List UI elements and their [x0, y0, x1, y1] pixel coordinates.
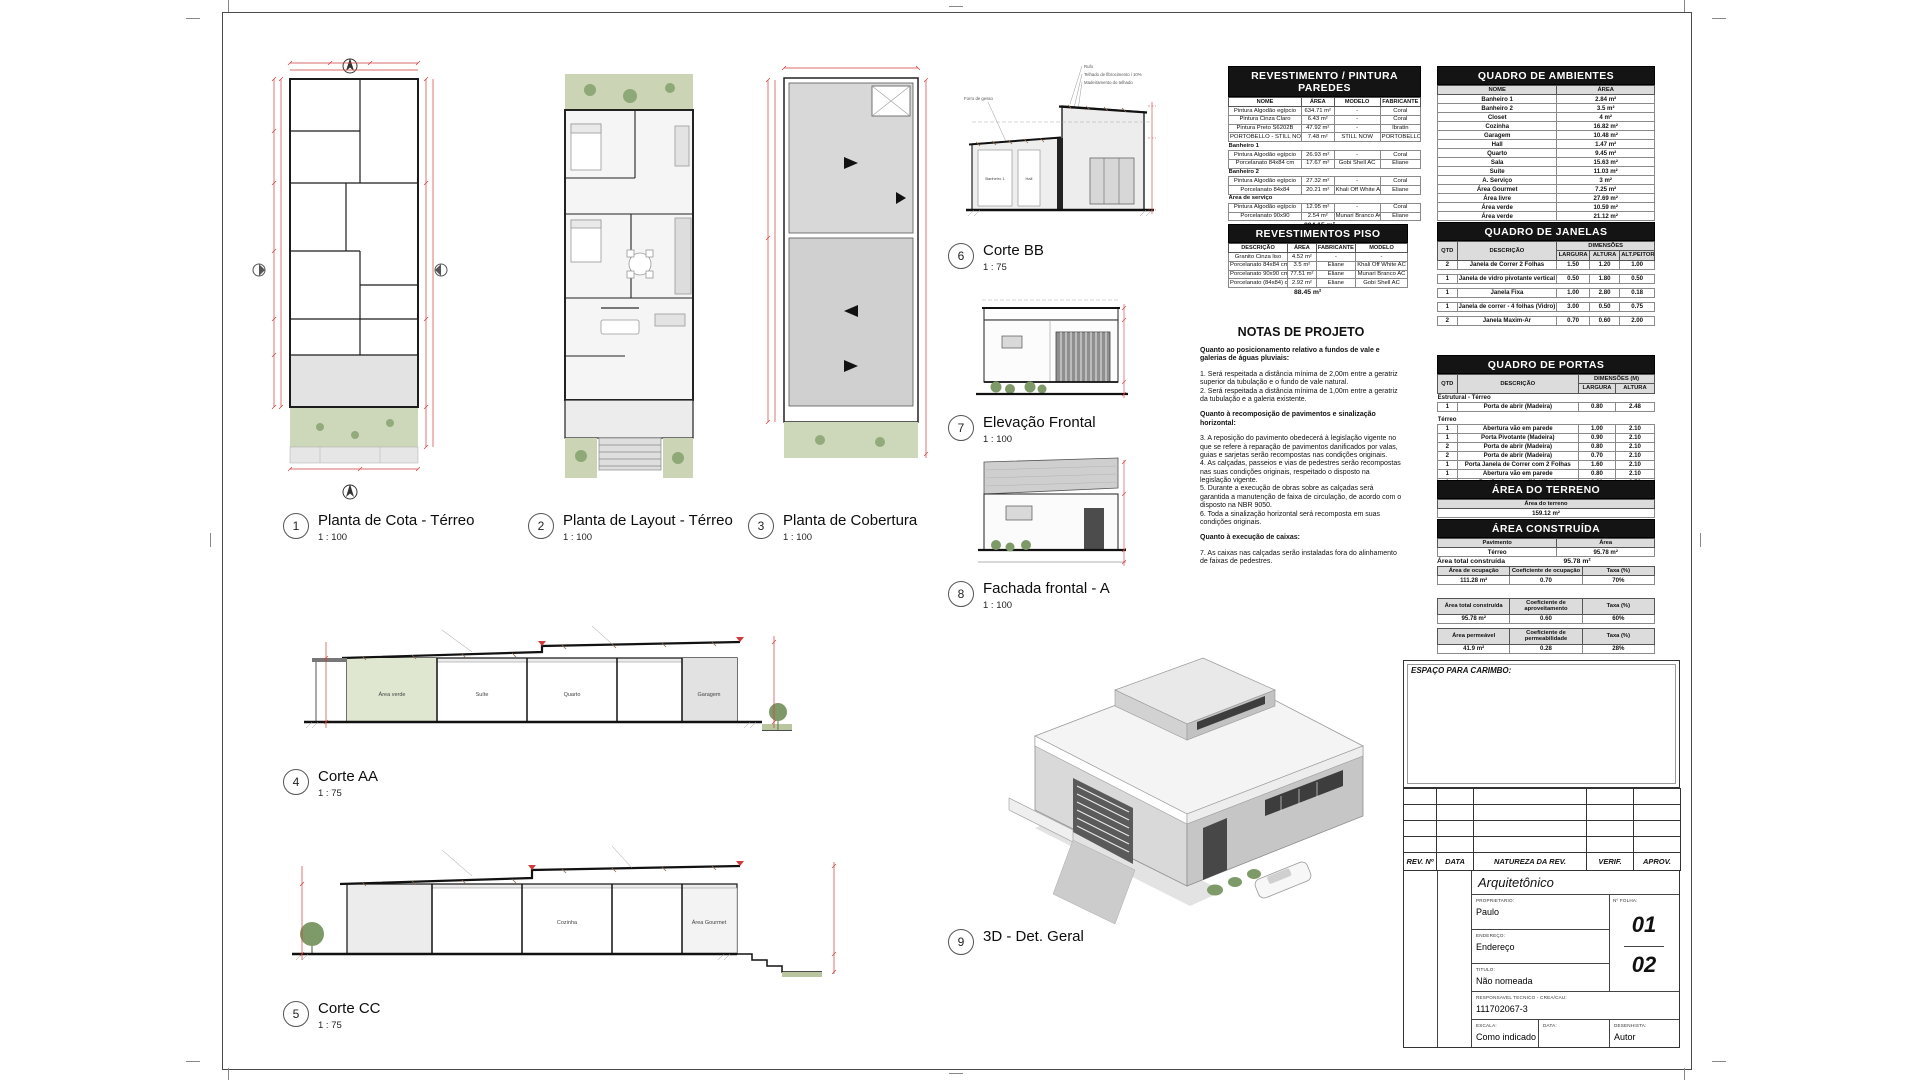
table-cell: 1.60 [1579, 460, 1616, 469]
table-cell: Porcelanato 90x90 [1229, 212, 1302, 221]
table-cell: Coral [1380, 115, 1420, 124]
level-marks [1148, 102, 1156, 214]
schedule-revestimento-paredes: REVESTIMENTO / PINTURA PAREDES NOME ÁREA… [1228, 66, 1421, 229]
table-cell: Eliane [1380, 186, 1420, 195]
stamp-inner-border [1407, 664, 1676, 784]
table-cell: - [1334, 115, 1380, 124]
schedule-title: QUADRO DE PORTAS [1437, 355, 1655, 374]
view-number: 4 [283, 769, 309, 795]
field-label-data: DATA: [1543, 1023, 1557, 1028]
schedule-table: QTD DESCRIÇÃO DIMENSÕES LARGURA ALTURA A… [1437, 241, 1655, 326]
trim-mark [228, 1068, 229, 1080]
schedule-table: Área do terreno 159.12 m² [1437, 499, 1655, 518]
table-cell: Banheiro 1 [1438, 95, 1557, 104]
table-cell: Porcelanato 84x84 cm [1229, 159, 1302, 168]
view-number: 9 [948, 929, 974, 955]
table-row: Banheiro 23.5 m² [1438, 104, 1655, 113]
table-cell: Área verde [1438, 212, 1557, 221]
table-cell: Pintura Algodão egípcio [1229, 203, 1302, 212]
table-cell: Porta de abrir (Madeira) [1457, 451, 1579, 460]
table-row: Banheiro 12.84 m² [1438, 95, 1655, 104]
table-cell: Porta Pivotante (Madeira) [1457, 433, 1579, 442]
table-cell: 1.00 [1579, 424, 1616, 433]
column-header: ÁREA [1557, 86, 1655, 95]
view-title: Elevação Frontal [983, 414, 1096, 431]
svg-text:Garagem: Garagem [698, 692, 721, 698]
schedule-title: REVESTIMENTOS PISO [1228, 224, 1408, 243]
table-cell: 2.92 m² [1288, 279, 1317, 288]
schedule-area-terreno: ÁREA DO TERRENO Área do terreno 159.12 m… [1437, 480, 1655, 518]
table-cell: Área verde [1438, 203, 1557, 212]
table-row: Porcelanato (84x84) cm2.92 m²ElianeGobi … [1229, 279, 1408, 288]
view-title: Planta de Cota - Térreo [318, 512, 474, 529]
elevation-body [978, 458, 1126, 562]
table-cell: Porta Janela de Correr com 2 Folhas [1457, 460, 1579, 469]
table-cell: 1.20 [1589, 260, 1619, 269]
table-row: 2Janela de Correr 2 Folhas1.501.201.00 [1438, 260, 1655, 269]
column-header: NATUREZA DA REV. [1474, 853, 1587, 871]
trim-mark [949, 6, 963, 7]
table-cell: Eliane [1316, 261, 1355, 270]
table-cell: 3 m² [1557, 176, 1655, 185]
table-cell: 95.78 m² [1557, 548, 1655, 557]
column-header: REV. Nº [1404, 853, 1437, 871]
svg-text:Banheiro 1: Banheiro 1 [985, 176, 1005, 181]
table-cell: Pintura Preto S6202B [1229, 124, 1302, 133]
table-cell: Janela Maxim-Ar [1457, 316, 1557, 325]
table-cell: 1 [1438, 460, 1458, 469]
table-cell: 0.50 [1620, 274, 1655, 283]
section-body: Cozinha Área Gourmet [292, 846, 822, 977]
table-cell: Janela de vidro pivotante vertical [1457, 274, 1557, 283]
column-header: Área [1557, 539, 1655, 548]
table-cell: Garagem [1438, 131, 1557, 140]
table-cell: STILL NOW [1334, 133, 1380, 142]
table-section-label: Banheiro 1 [1229, 142, 1421, 151]
table-cell: 0.80 [1579, 442, 1616, 451]
section-body: Área verde Suíte Quarto Garagem [304, 626, 792, 730]
table-row: Porcelanato 84x8420.21 m²Khali Off White… [1229, 186, 1421, 195]
table-row: Quarto9.45 m² [1438, 149, 1655, 158]
column-header: Pavimento [1438, 539, 1557, 548]
column-header: DIMENSÕES (M) [1579, 375, 1655, 384]
table-cell: 0.80 [1579, 402, 1616, 411]
table-row: 1Abertura vão em parede0.802.10 [1438, 469, 1655, 478]
view-label-4: 4 Corte AA 1 : 75 [283, 768, 378, 799]
schedule-total: 88.45 m² [1228, 288, 1408, 296]
table-cell: 1 [1438, 402, 1458, 411]
table-section-label: Área de serviço [1229, 194, 1421, 203]
svg-text:Telhado de fibrocimento i 10%: Telhado de fibrocimento i 10% [1084, 72, 1142, 77]
table-row: 2Porta de abrir (Madeira)0.702.10 [1438, 451, 1655, 460]
table-cell: 17.67 m² [1301, 159, 1334, 168]
table-cell: Ibratin [1380, 124, 1420, 133]
fachada-frontal-drawing [972, 448, 1132, 576]
corte-bb-drawing: Rufo Telhado de fibrocimento i 10% Madei… [962, 58, 1157, 243]
table-section-label: Banheiro 2 [1229, 168, 1421, 177]
table-row: Sala15.63 m² [1438, 158, 1655, 167]
table-cell: 634.71 m² [1301, 107, 1334, 116]
field-label-responsavel: RESPONSAVEL TECNICO - CREA/CAU: [1476, 995, 1567, 1000]
elevation-body [976, 300, 1128, 394]
notes-paragraph: 3. A reposição do pavimento obedecerá à … [1200, 435, 1402, 527]
view-label-6: 6 Corte BB 1 : 75 [948, 242, 1044, 273]
table-cell: 1 [1438, 424, 1458, 433]
revision-empty-row [1404, 821, 1681, 837]
table-cell: Cozinha [1438, 122, 1557, 131]
table-cell: 41.9 m² [1438, 644, 1510, 653]
table-cell: 2.80 [1589, 288, 1619, 297]
table-cell: 0.70 [1510, 576, 1582, 585]
svg-text:Suíte: Suíte [476, 692, 489, 698]
view-title: Planta de Cobertura [783, 512, 917, 529]
schedule-footer: Área total construída 95.78 m² [1437, 557, 1655, 565]
table-cell: 0.80 [1579, 469, 1616, 478]
view-title: Corte BB [983, 242, 1044, 259]
table-cell: Janela Fixa [1457, 288, 1557, 297]
table-cell: 2.10 [1615, 442, 1654, 451]
trim-mark [1700, 533, 1701, 547]
table-cell: 1.00 [1557, 288, 1590, 297]
notes-heading: Quanto à recomposição de pavimentos e si… [1200, 411, 1402, 428]
table-cell: Munari Branco AC [1356, 270, 1408, 279]
table-row: Pintura Algodão egípcio12.95 m²-Coral [1229, 203, 1421, 212]
svg-text:Rufo: Rufo [1084, 64, 1094, 69]
table-cell: 2.10 [1615, 424, 1654, 433]
table-cell: 0.90 [1579, 433, 1616, 442]
table-row: A. Serviço3 m² [1438, 176, 1655, 185]
table-cell: 11.03 m² [1557, 167, 1655, 176]
notes-title: NOTAS DE PROJETO [1200, 325, 1402, 339]
table-cell: 1 [1438, 469, 1458, 478]
column-header: Coeficiente de ocupação [1510, 567, 1582, 576]
column-header: ÁREA [1288, 244, 1317, 253]
view-label-1: 1 Planta de Cota - Térreo 1 : 100 [283, 512, 474, 543]
view-title: Corte AA [318, 768, 378, 785]
field-value-proprietario: Paulo [1476, 907, 1499, 917]
ratio-table-aproveitamento: Área total construída Coeficiente de apr… [1437, 598, 1655, 624]
table-cell: Quarto [1438, 149, 1557, 158]
table-row: Térreo [1438, 416, 1655, 425]
table-cell: Área livre [1438, 194, 1557, 203]
schedule-title: ÁREA CONSTRUÍDA [1437, 519, 1655, 538]
notes-paragraph: 1. Será respeitada a distância mínima de… [1200, 371, 1402, 405]
table-cell: 1 [1438, 274, 1458, 283]
table-cell: 7.48 m² [1301, 133, 1334, 142]
table-cell: Área Gourmet [1438, 185, 1557, 194]
revision-table: REV. Nº DATA NATUREZA DA REV. VERIF. APR… [1403, 788, 1681, 871]
table-cell: 16.82 m² [1557, 122, 1655, 131]
ratio-table-permeabilidade: Área permeável Coeficiente de permeabili… [1437, 628, 1655, 654]
trim-mark [210, 533, 211, 547]
table-row: 2Porta de abrir (Madeira)0.802.10 [1438, 442, 1655, 451]
column-header: DIMENSÕES [1557, 242, 1655, 251]
table-cell: 20.21 m² [1301, 186, 1334, 195]
elevation-marker-icon [253, 264, 265, 276]
table-cell: 1.80 [1589, 274, 1619, 283]
table-cell: 0.60 [1589, 316, 1619, 325]
schedule-quadro-ambientes: QUADRO DE AMBIENTES NOME ÁREA Banheiro 1… [1437, 66, 1655, 237]
table-row: 1Porta Pivotante (Madeira)0.902.10 [1438, 433, 1655, 442]
table-row: Banheiro 1 [1229, 142, 1421, 151]
field-value-escala: Como indicado [1476, 1032, 1536, 1042]
table-row: Térreo95.78 m² [1438, 548, 1655, 557]
column-header: Área de ocupação [1438, 567, 1510, 576]
table-cell: - [1334, 124, 1380, 133]
column-header: ALTURA [1589, 251, 1619, 260]
table-cell: Banheiro 2 [1438, 104, 1557, 113]
level-marks [1122, 304, 1126, 398]
table-cell: 0.28 [1510, 644, 1582, 653]
svg-text:Cozinha: Cozinha [557, 920, 578, 926]
table-row: Garagem10.48 m² [1438, 131, 1655, 140]
corte-cc-drawing: Cozinha Área Gourmet [282, 822, 852, 987]
table-cell: Gobi Shell AC [1334, 159, 1380, 168]
field-value-endereco: Endereço [1476, 942, 1515, 952]
view-number: 8 [948, 581, 974, 607]
table-cell: PORTOBELLO - STILL NOW SAND 160X160 NAT … [1229, 133, 1302, 142]
table-row: Área Gourmet7.25 m² [1438, 185, 1655, 194]
column-header: FABRICANTE [1316, 244, 1355, 253]
table-cell: Porta de abrir (Madeira) [1457, 402, 1579, 411]
column-header: Área do terreno [1438, 500, 1655, 509]
field-value-titulo: Não nomeada [1476, 976, 1533, 986]
table-cell: 26.93 m² [1301, 151, 1334, 160]
footer-label: Área total construída [1437, 558, 1505, 565]
table-row: PORTOBELLO - STILL NOW SAND 160X160 NAT … [1229, 133, 1421, 142]
table-row: 1Janela de correr - 4 folhas (Vidro)3.00… [1438, 302, 1655, 311]
table-row: 1Janela de vidro pivotante vertical0.501… [1438, 274, 1655, 283]
table-cell: 10.59 m² [1557, 203, 1655, 212]
table-cell: Pintura Cinza Claro [1229, 115, 1302, 124]
sheet-number-box: Nº FOLHA: 01 02 [1609, 894, 1679, 991]
view-number: 5 [283, 1001, 309, 1027]
table-cell: 4 m² [1557, 113, 1655, 122]
column-header: ÁREA [1301, 98, 1334, 107]
schedule-table: DESCRIÇÃO ÁREA FABRICANTE MODELO Granito… [1228, 243, 1408, 288]
table-cell: 28% [1582, 644, 1654, 653]
table-cell: 3.5 m² [1288, 261, 1317, 270]
schedule-table: Pavimento Área Térreo95.78 m² [1437, 538, 1655, 557]
column-header: QTD [1438, 375, 1458, 394]
view-label-3: 3 Planta de Cobertura 1 : 100 [748, 512, 917, 543]
column-header: DESCRIÇÃO [1457, 375, 1579, 394]
schedule-table: Área de ocupação Coeficiente de ocupação… [1437, 566, 1655, 585]
table-row: 95.78 m² 0.60 60% [1438, 614, 1655, 623]
trim-mark [228, 0, 229, 12]
table-cell: 9.45 m² [1557, 149, 1655, 158]
notes-heading: Quanto ao posicionamento relativo a fund… [1200, 347, 1402, 364]
schedule-quadro-portas: QUADRO DE PORTAS QTD DESCRIÇÃO DIMENSÕES… [1437, 355, 1655, 488]
table-cell: Gobi Shell AC [1356, 279, 1408, 288]
table-row: 1Porta de abrir (Madeira)0.802.48 [1438, 402, 1655, 411]
schedule-table: Área permeável Coeficiente de permeabili… [1437, 628, 1655, 654]
field-label-folha: Nº FOLHA: [1613, 898, 1638, 903]
view-scale: 1 : 75 [318, 788, 378, 799]
column-header: Taxa (%) [1582, 567, 1654, 576]
table-cell: - [1316, 253, 1355, 262]
column-header: ALT.PEITORIL [1620, 251, 1655, 260]
section-annotations: Rufo Telhado de fibrocimento i 10% Madei… [964, 64, 1142, 101]
table-row: Área verde21.12 m² [1438, 212, 1655, 221]
table-cell: 0.18 [1620, 288, 1655, 297]
column-header: Coeficiente de permeabilidade [1510, 629, 1582, 645]
table-row: Banheiro 2 [1229, 168, 1421, 177]
notes-body: Quanto ao posicionamento relativo a fund… [1200, 347, 1402, 567]
revision-header-row: REV. Nº DATA NATUREZA DA REV. VERIF. APR… [1404, 853, 1681, 871]
3d-house [1009, 658, 1363, 924]
table-row: 41.9 m² 0.28 28% [1438, 644, 1655, 653]
trim-mark [186, 1061, 200, 1062]
table-cell: - [1334, 107, 1380, 116]
table-row: Estrutural - Térreo [1438, 393, 1655, 402]
table-cell: 111.28 m² [1438, 576, 1510, 585]
sheet-total: 02 [1609, 952, 1679, 978]
column-header: MODELO [1356, 244, 1408, 253]
sheet: Rufo Telhado de fibrocimento i 10% Madei… [0, 0, 1920, 1080]
trim-mark [1712, 18, 1726, 19]
view-label-7: 7 Elevação Frontal 1 : 100 [948, 414, 1096, 445]
view-number: 7 [948, 415, 974, 441]
table-cell: 2.54 m² [1301, 212, 1334, 221]
schedule-revestimentos-piso: REVESTIMENTOS PISO DESCRIÇÃO ÁREA FABRIC… [1228, 224, 1408, 296]
table-cell: Pintura Algodão egípcio [1229, 151, 1302, 160]
table-cell: 2.84 m² [1557, 95, 1655, 104]
column-header: FABRICANTE [1380, 98, 1420, 107]
table-row: Porcelanato 90x902.54 m²Munari Branco AC… [1229, 212, 1421, 221]
table-cell: Porcelanato (84x84) cm [1229, 279, 1288, 288]
view-scale: 1 : 100 [983, 434, 1096, 445]
table-row: 2Janela Maxim-Ar0.700.602.00 [1438, 316, 1655, 325]
table-cell: Khali Off White AC [1356, 261, 1408, 270]
svg-text:Hall: Hall [1026, 176, 1033, 181]
view-scale: 1 : 100 [983, 600, 1110, 611]
table-row: Porcelanato 84x84 cm17.67 m²Gobi Shell A… [1229, 159, 1421, 168]
revision-empty-row [1404, 837, 1681, 853]
notes-heading: Quanto à execução de caixas: [1200, 534, 1402, 542]
schedule-table: QTD DESCRIÇÃO DIMENSÕES (M) LARGURA ALTU… [1437, 374, 1655, 488]
column-header: DESCRIÇÃO [1229, 244, 1288, 253]
svg-text:Forro de gesso: Forro de gesso [964, 96, 994, 101]
table-cell: Coral [1380, 203, 1420, 212]
table-cell: 60% [1582, 614, 1654, 623]
revision-empty-row [1404, 789, 1681, 805]
table-row: Granito Cinza liso4.52 m²-- [1229, 253, 1408, 262]
table-cell: Eliane [1380, 159, 1420, 168]
field-value-responsavel: 111702067-3 [1476, 1004, 1528, 1014]
table-cell: 77.51 m² [1288, 270, 1317, 279]
table-cell: 27.69 m² [1557, 194, 1655, 203]
elevacao-frontal-drawing [972, 288, 1132, 406]
stamp-label: ESPAÇO PARA CARIMBO: [1411, 666, 1511, 675]
column-header: NOME [1438, 86, 1557, 95]
table-cell: Khali Off White AC [1334, 186, 1380, 195]
table-cell: 1 [1438, 288, 1458, 297]
column-header: Taxa (%) [1582, 599, 1654, 615]
table-cell: Coral [1380, 177, 1420, 186]
table-cell: 0.70 [1579, 451, 1616, 460]
layout-plan [565, 74, 693, 478]
view-label-9: 9 3D - Det. Geral [948, 928, 1084, 955]
view-title: Fachada frontal - A [983, 580, 1110, 597]
column-header: Coeficiente de aproveitamento [1510, 599, 1582, 615]
view-title: Planta de Layout - Térreo [563, 512, 733, 529]
column-header: MODELO [1334, 98, 1380, 107]
view-label-5: 5 Corte CC 1 : 75 [283, 1000, 381, 1031]
table-cell: - [1334, 151, 1380, 160]
table-row: 1Abertura vão em parede1.002.10 [1438, 424, 1655, 433]
column-header: DESCRIÇÃO [1457, 242, 1557, 261]
car [1253, 860, 1312, 900]
column-header: QTD [1438, 242, 1458, 261]
notes-paragraph: 7. As caixas nas calçadas serão instalad… [1200, 550, 1402, 567]
svg-text:Madeiramento do telhado: Madeiramento do telhado [1084, 80, 1133, 85]
table-cell: 2 [1438, 451, 1458, 460]
table-row: Pintura Preto S6202B47.92 m²-Ibratin [1229, 124, 1421, 133]
column-header: Área total construída [1438, 599, 1510, 615]
table-cell: Granito Cinza liso [1229, 253, 1288, 262]
table-cell: Eliane [1316, 270, 1355, 279]
view-scale: 1 : 100 [563, 532, 733, 543]
table-cell: 95.78 m² [1438, 614, 1510, 623]
schedule-title: REVESTIMENTO / PINTURA PAREDES [1228, 66, 1421, 97]
table-cell: Porta de abrir (Madeira) [1457, 442, 1579, 451]
schedule-table: NOME ÁREA Banheiro 12.84 m²Banheiro 23.5… [1437, 85, 1655, 221]
view-scale: 1 : 75 [983, 262, 1044, 273]
table-cell: Abertura vão em parede [1457, 424, 1579, 433]
field-label-desenhista: DESENHISTA: [1614, 1023, 1647, 1028]
table-cell: - [1334, 203, 1380, 212]
table-section-label: Térreo [1438, 416, 1655, 425]
trim-mark [1712, 1061, 1726, 1062]
trim-mark [1684, 1068, 1685, 1080]
table-row: Cozinha16.82 m² [1438, 122, 1655, 131]
table-row: 159.12 m² [1438, 509, 1655, 518]
table-cell: 70% [1582, 576, 1654, 585]
trim-mark [1684, 0, 1685, 12]
north-arrow-icon [343, 58, 357, 73]
table-row: Pintura Algodão egípcio634.71 m²-Coral [1229, 107, 1421, 116]
schedule-area-construida: ÁREA CONSTRUÍDA Pavimento Área Térreo95.… [1437, 519, 1655, 565]
section-body: Banheiro 1 Hall [966, 105, 1154, 216]
column-header: LARGURA [1557, 251, 1590, 260]
table-cell: 47.92 m² [1301, 124, 1334, 133]
column-header: VERIF. [1587, 853, 1634, 871]
column-header: NOME [1229, 98, 1302, 107]
table-cell: Sala [1438, 158, 1557, 167]
table-cell: 4.52 m² [1288, 253, 1317, 262]
footer-value: 95.78 m² [1563, 558, 1590, 565]
table-row: Hall1.47 m² [1438, 140, 1655, 149]
table-cell: Porcelanato 84x84 cm [1229, 261, 1288, 270]
column-header: DATA [1437, 853, 1474, 871]
table-row: 111.28 m² 0.70 70% [1438, 576, 1655, 585]
table-cell: 21.12 m² [1557, 212, 1655, 221]
field-label-endereco: ENDEREÇO: [1476, 933, 1505, 938]
table-cell: 2.10 [1615, 433, 1654, 442]
table-cell: Térreo [1438, 548, 1557, 557]
table-cell: Pintura Algodão egípcio [1229, 177, 1302, 186]
table-cell: 159.12 m² [1438, 509, 1655, 518]
table-row: 1Janela Fixa1.002.800.18 [1438, 288, 1655, 297]
table-cell: Porcelanato 84x84 [1229, 186, 1302, 195]
table-cell: 2.00 [1620, 316, 1655, 325]
schedule-table: NOME ÁREA MODELO FABRICANTE Pintura Algo… [1228, 97, 1421, 221]
view-title: 3D - Det. Geral [983, 928, 1084, 945]
table-cell: 10.48 m² [1557, 131, 1655, 140]
elevation-marker-icon [435, 264, 447, 276]
table-cell: 1 [1438, 302, 1458, 311]
